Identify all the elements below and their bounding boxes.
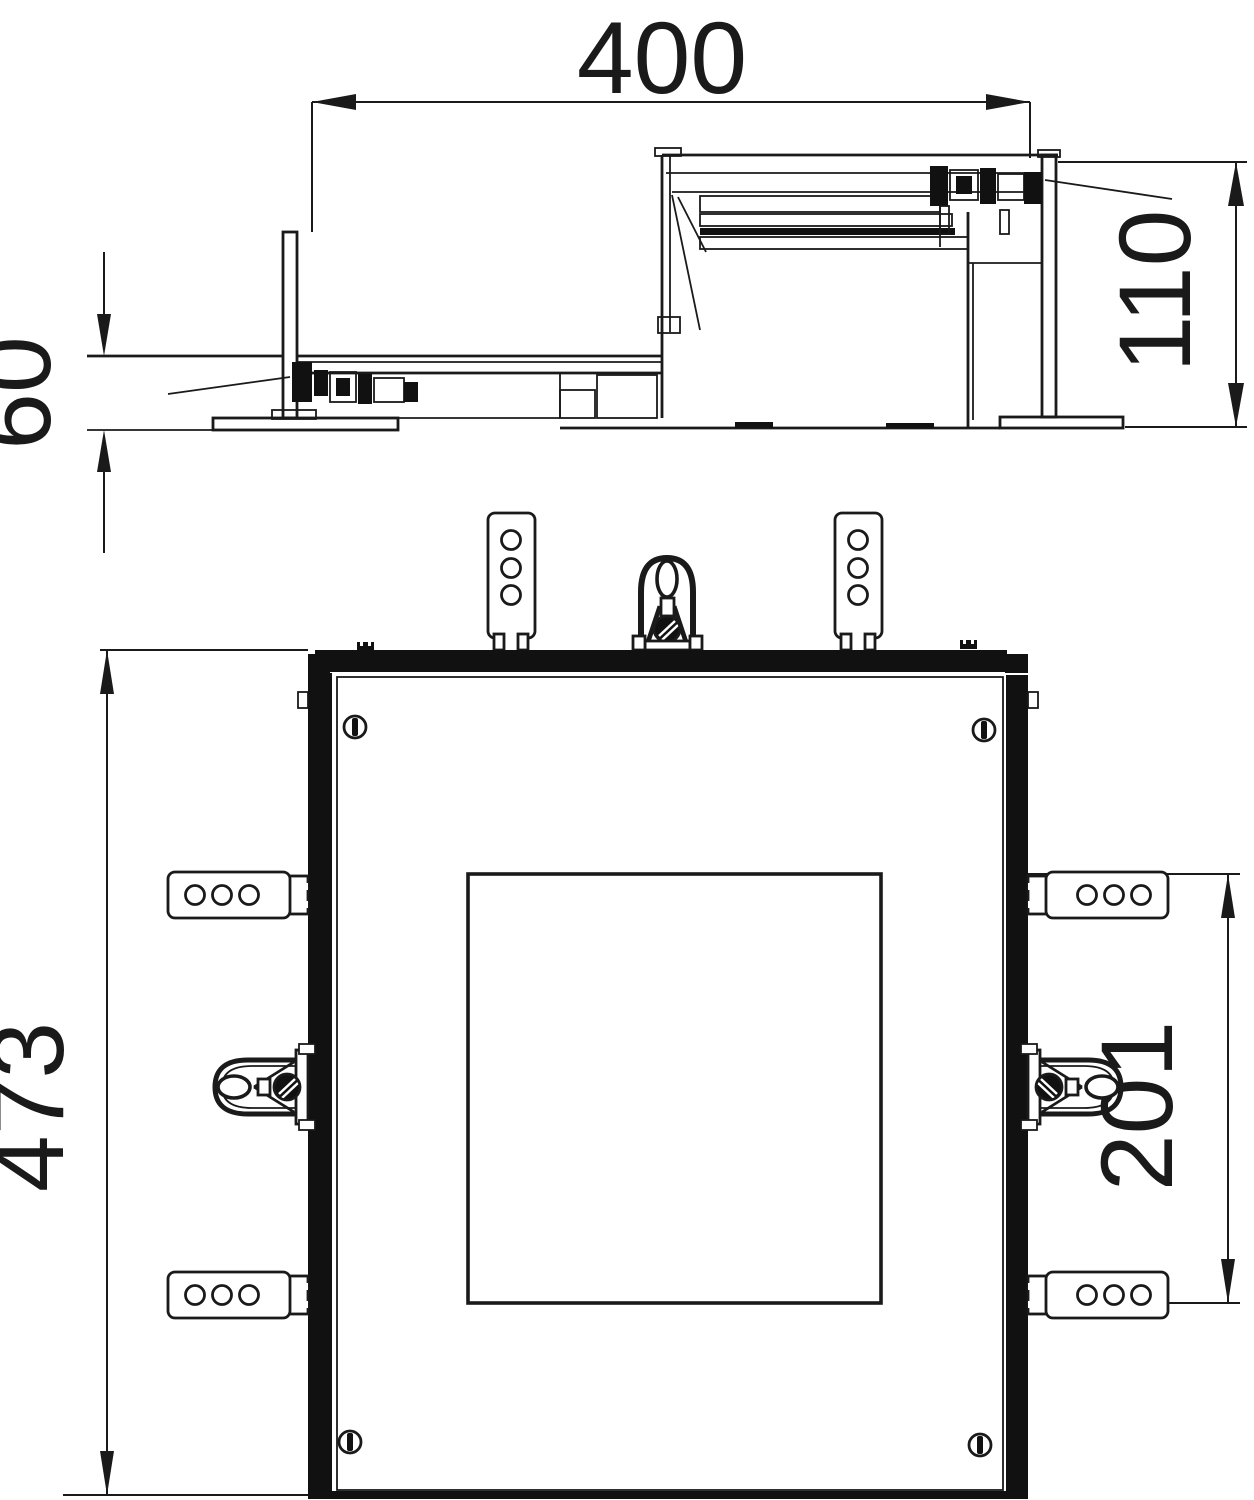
clamp-mechanism-left bbox=[292, 362, 418, 404]
bottom-frame-bar bbox=[308, 1491, 1028, 1499]
right-base-plate bbox=[1000, 417, 1123, 428]
dimension-110-label: 110 bbox=[1098, 210, 1212, 373]
top-bar-screw-left bbox=[357, 642, 374, 651]
bracket-hole bbox=[502, 531, 521, 550]
clamp-mechanism-right bbox=[930, 166, 1042, 234]
corner-screw-top-right bbox=[973, 719, 995, 741]
top-bar-screw-right bbox=[960, 640, 977, 649]
side-bracket-right-lower bbox=[1028, 1272, 1168, 1318]
top-bar-endcap-left bbox=[308, 654, 330, 673]
left-frame-bar bbox=[308, 673, 332, 1497]
top-bar-endcap-right bbox=[1005, 654, 1028, 673]
bracket-hole bbox=[849, 531, 868, 550]
leader-line-right bbox=[1045, 180, 1172, 199]
dimension-60: 60 bbox=[0, 252, 111, 553]
dimension-473: 473 bbox=[0, 650, 308, 1495]
side-bracket-left-lower bbox=[168, 1272, 308, 1318]
right-post bbox=[1042, 155, 1056, 417]
panel-face-outline bbox=[337, 677, 1003, 1490]
top-bracket-left bbox=[488, 513, 535, 650]
bracket-hole bbox=[502, 559, 521, 578]
dimension-473-label: 473 bbox=[0, 1022, 85, 1192]
corner-screw-top-left bbox=[344, 716, 366, 738]
lifting-handle-top bbox=[633, 558, 702, 650]
dimension-110: 110 bbox=[1058, 162, 1247, 427]
side-bracket-left-upper bbox=[168, 872, 308, 918]
drawing-canvas: 400 110 60 bbox=[0, 0, 1254, 1500]
corner-screw-bottom-left bbox=[339, 1431, 361, 1453]
frame-bars bbox=[298, 640, 1038, 1499]
side-view: 400 110 60 bbox=[0, 1, 1247, 553]
inner-cutout-square bbox=[468, 874, 881, 1303]
leader-line-left bbox=[168, 377, 290, 394]
side-handle-left bbox=[215, 1044, 315, 1130]
technical-drawing-page: 400 110 60 bbox=[0, 0, 1254, 1500]
side-left-low-section bbox=[87, 232, 662, 430]
top-frame-bar bbox=[315, 650, 1007, 672]
right-frame-bar bbox=[1006, 675, 1028, 1498]
top-bracket-right bbox=[835, 513, 882, 650]
bracket-hole bbox=[849, 586, 868, 605]
bracket-hole bbox=[849, 559, 868, 578]
side-right-raised-section bbox=[560, 148, 1172, 428]
dimension-60-label: 60 bbox=[0, 336, 72, 449]
side-tab-right bbox=[1028, 692, 1038, 708]
dimension-400: 400 bbox=[312, 1, 1030, 232]
side-tab-left bbox=[298, 692, 308, 708]
bracket-hole bbox=[502, 586, 521, 605]
plan-view: 473 201 bbox=[0, 513, 1240, 1499]
side-bracket-right-upper bbox=[1028, 872, 1168, 918]
dimension-400-label: 400 bbox=[577, 1, 747, 115]
corner-screw-bottom-right bbox=[969, 1434, 991, 1456]
